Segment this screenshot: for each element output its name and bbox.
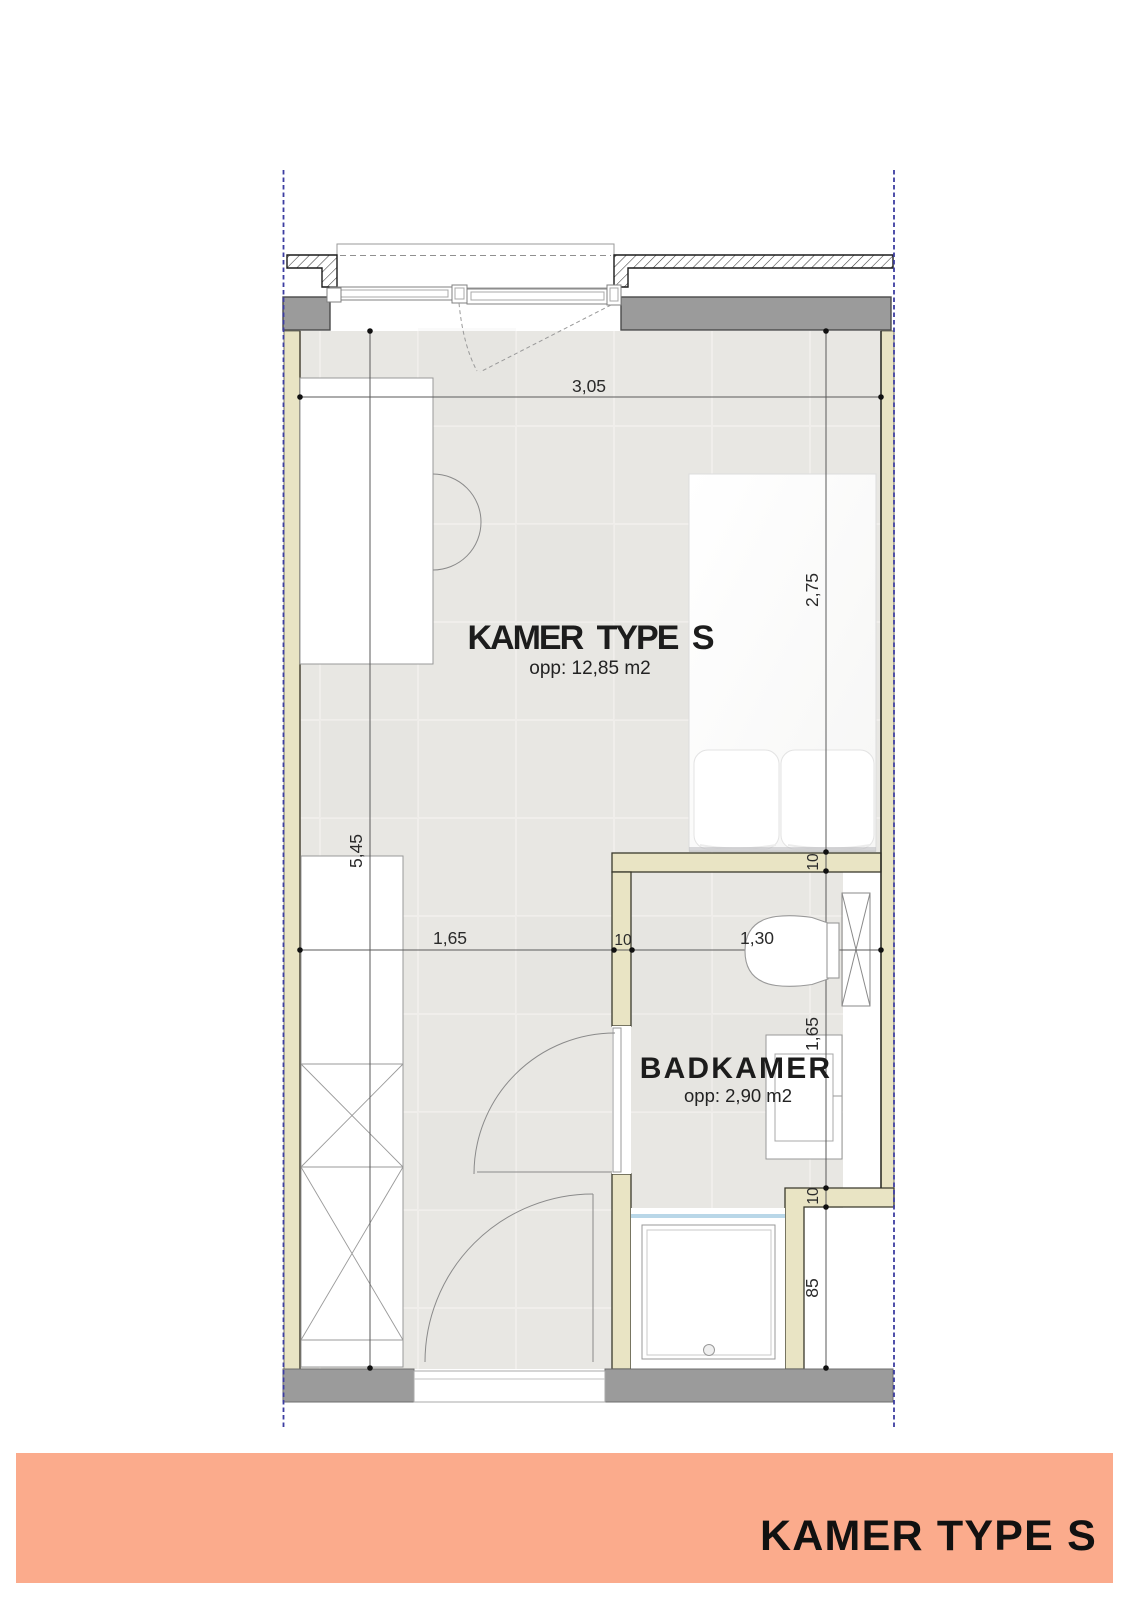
svg-text:85: 85 [802, 1278, 822, 1297]
svg-text:KAMER TYPE S: KAMER TYPE S [760, 1512, 1097, 1560]
svg-text:10: 10 [614, 932, 632, 949]
svg-text:10: 10 [805, 1187, 822, 1205]
svg-text:1,65: 1,65 [433, 928, 467, 948]
svg-text:10: 10 [805, 853, 822, 871]
svg-text:1,65: 1,65 [802, 1017, 822, 1051]
svg-text:5,45: 5,45 [346, 834, 366, 868]
svg-text:2,75: 2,75 [802, 573, 822, 607]
svg-text:BADKAMER: BADKAMER [640, 1052, 833, 1085]
svg-text:3,05: 3,05 [572, 376, 606, 396]
svg-text:1,30: 1,30 [740, 928, 774, 948]
svg-text:opp: 2,90 m2: opp: 2,90 m2 [684, 1085, 792, 1106]
svg-text:opp: 12,85 m2: opp: 12,85 m2 [529, 658, 650, 679]
svg-text:KAMER TYPE S: KAMER TYPE S [467, 619, 713, 657]
